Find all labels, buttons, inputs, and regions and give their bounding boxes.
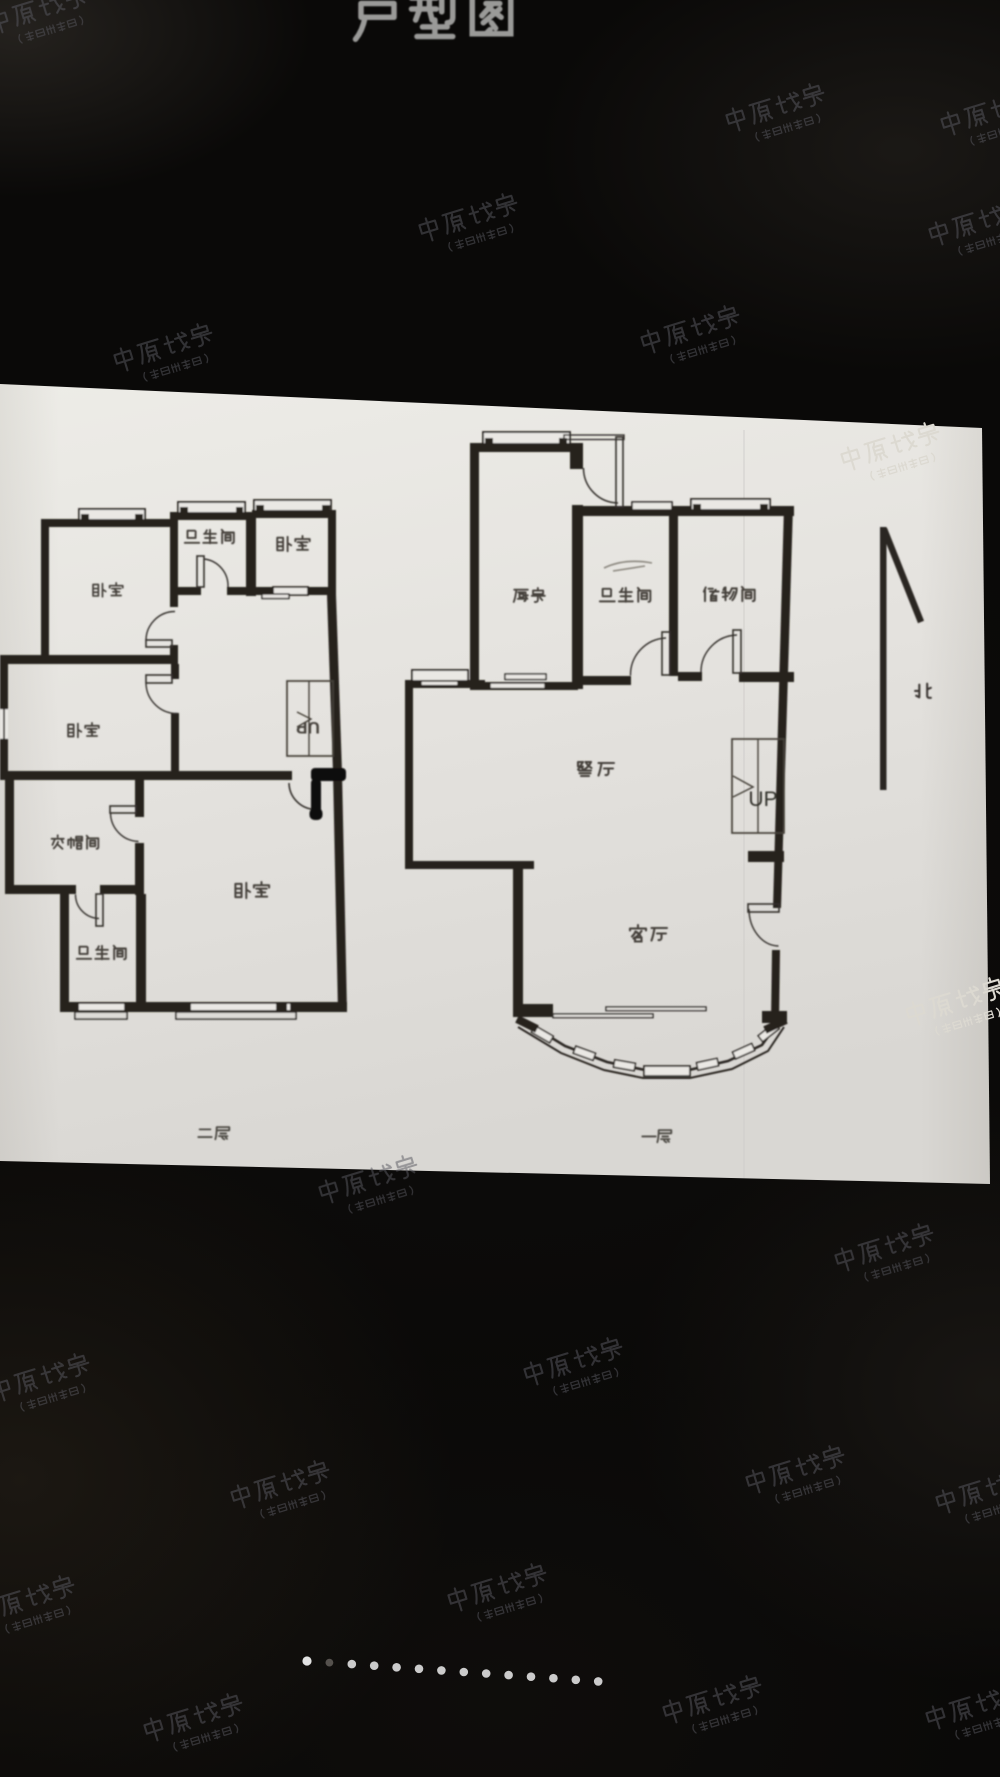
svg-text:UP: UP xyxy=(296,718,320,737)
svg-text:UP: UP xyxy=(748,788,777,811)
